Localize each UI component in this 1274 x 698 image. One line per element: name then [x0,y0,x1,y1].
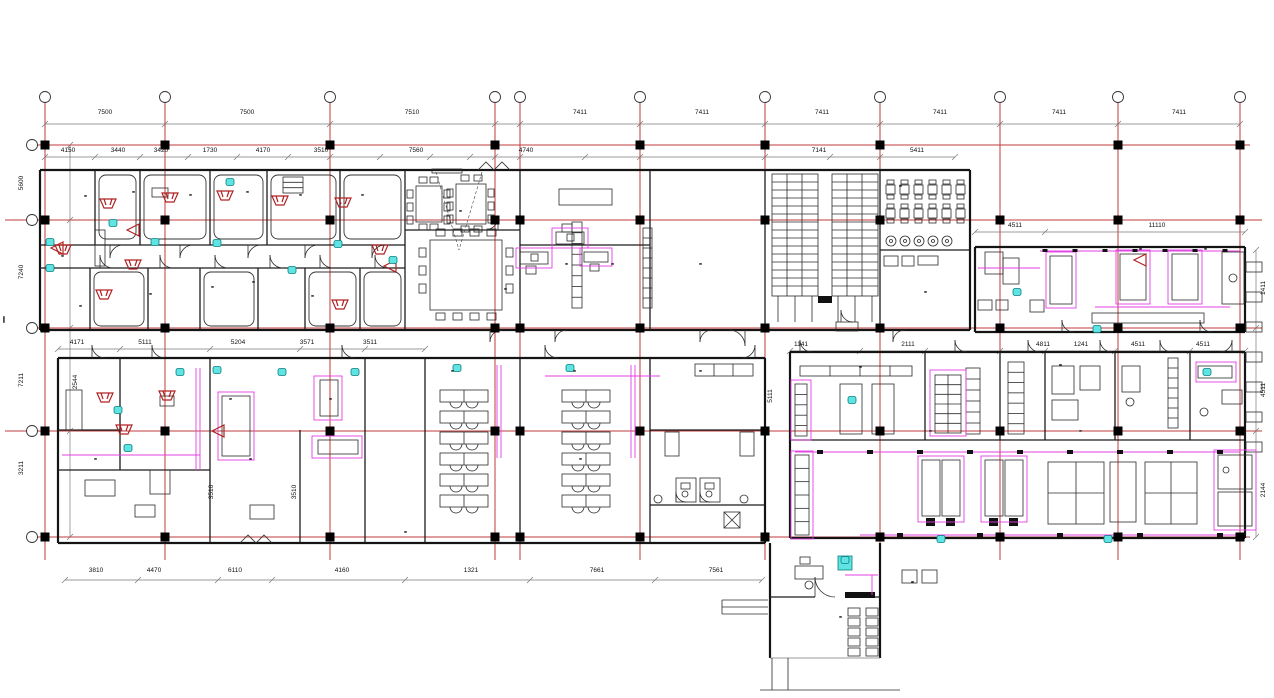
room-label-blob: ▪▪▪ [84,195,86,200]
dimension-label: 1241 [1074,342,1088,349]
room-label-blob: ▪▪▪ [252,281,254,286]
room-label-blob: ▪▪▪ [149,293,151,298]
room-label-blob: ▪▪▪ [459,210,461,215]
room-label-blob: ▪▪▪ [839,616,841,621]
dimension-label: 4511 [1196,342,1210,349]
room-label-blob: ▪▪▪ [299,194,301,199]
room-label-blob: ▪▪▪ [929,430,931,435]
dimension-label: 1321 [464,568,478,575]
room-label-blob: ▪▪▪ [211,286,213,291]
room-label-blob: ▪▪▪ [827,300,829,305]
room-label-blob: ▪▪▪ [859,366,861,371]
dimension-label: 7510 [405,110,419,117]
dimension-label: 5600 [19,176,26,190]
dimension-label: 7411 [1172,110,1186,117]
dimension-label: 2544 [73,375,80,389]
room-label-blob: ▪▪▪ [699,370,701,375]
room-label-blob: ▪▪▪ [189,194,191,199]
room-label-blob: ▪▪▪ [132,191,134,196]
dimension-label: 5111 [138,340,152,347]
dimension-label: 4511 [1261,383,1268,397]
dimension-label: 3440 [111,148,125,155]
room-label-blob: ▪▪▪ [924,291,926,296]
dimension-label: 3211 [19,461,26,475]
room-label-blob: ▪▪▪ [911,581,913,586]
room-label-blob: ▪▪▪ [573,370,575,375]
dimension-label: 3510 [314,148,328,155]
dimension-label: 4511 [1008,223,1022,230]
dimension-label: 7211 [19,373,26,387]
dimension-label: 2111 [901,342,915,349]
dimension-label: 3810 [89,568,103,575]
dimension-label: 4470 [147,568,161,575]
dimension-label: 4511 [1131,342,1145,349]
room-label-blob: ▪▪▪ [1079,430,1081,435]
room-label-blob: ▪▪▪ [311,295,313,300]
floor-plan-drawing [0,0,1274,698]
dimension-label: 4171 [70,340,84,347]
dimension-label: 7411 [815,110,829,117]
room-label-blob: ▪▪▪ [611,263,613,268]
dimension-label: 2144 [1261,483,1268,497]
room-label-blob: ▪▪▪ [565,263,567,268]
dimension-label: 3571 [300,340,314,347]
dimension-label: 11110 [1149,223,1166,230]
left-edge-vertical-text: ▪▪▪▪▪▪▪▪ [3,317,8,323]
dimension-label: 5204 [231,340,245,347]
room-label-blob: ▪▪▪ [249,458,251,463]
dimension-label: 7411 [933,110,947,117]
dimension-label: 4811 [1036,342,1050,349]
dimension-label: 3420 [154,148,168,155]
room-label-blob: ▪▪▪ [361,194,363,199]
dimension-label: 7141 [812,148,826,155]
dimension-label: 7240 [19,265,26,279]
dimension-label: 4160 [335,568,349,575]
room-label-blob: ▪▪▪ [579,458,581,463]
dimension-label: 1730 [203,148,217,155]
room-label-blob: ▪▪▪ [94,458,96,463]
dimension-label: 1411 [1261,281,1268,295]
room-label-blob: ▪▪▪ [246,191,248,196]
room-label-blob: ▪▪▪ [1059,364,1061,369]
dimension-label: 7411 [573,110,587,117]
dimension-label: 6110 [228,568,242,575]
floor-plan-canvas: 7500750075107411741174117411741174114150… [0,0,1274,698]
room-label-blob: ▪▪▪ [1204,248,1206,253]
dimension-label: 4740 [519,148,533,155]
dimension-label: 7661 [590,568,604,575]
room-label-blob: ▪▪▪ [699,263,701,268]
room-label-blob: ▪▪▪ [451,370,453,375]
room-label-blob: ▪▪▪ [61,255,63,260]
dimension-label: 7561 [709,568,723,575]
dimension-label: 4150 [61,148,75,155]
room-label-blob: ▪▪▪ [1139,248,1141,253]
dimension-label: 4170 [256,148,270,155]
dimension-label: 7411 [695,110,709,117]
dimension-label: 3510 [292,485,299,499]
dimension-label: 7411 [1052,110,1066,117]
dimension-label: 5411 [910,148,924,155]
room-label-blob: ▪▪▪ [404,531,406,536]
dimension-label: 7500 [98,110,112,117]
room-label-blob: ▪▪▪ [899,185,901,190]
room-label-blob: ▪▪▪ [79,305,81,310]
dimension-label: 1141 [794,342,808,349]
dimension-label: 7500 [240,110,254,117]
room-label-blob: ▪▪▪ [329,398,331,403]
room-label-blob: ▪▪▪ [229,398,231,403]
dimension-label: 3510 [209,485,216,499]
dimension-label: 7560 [409,148,423,155]
dimension-label: 5111 [768,389,775,403]
room-label-blob: ▪▪▪ [504,288,506,293]
dimension-label: 3511 [363,340,377,347]
